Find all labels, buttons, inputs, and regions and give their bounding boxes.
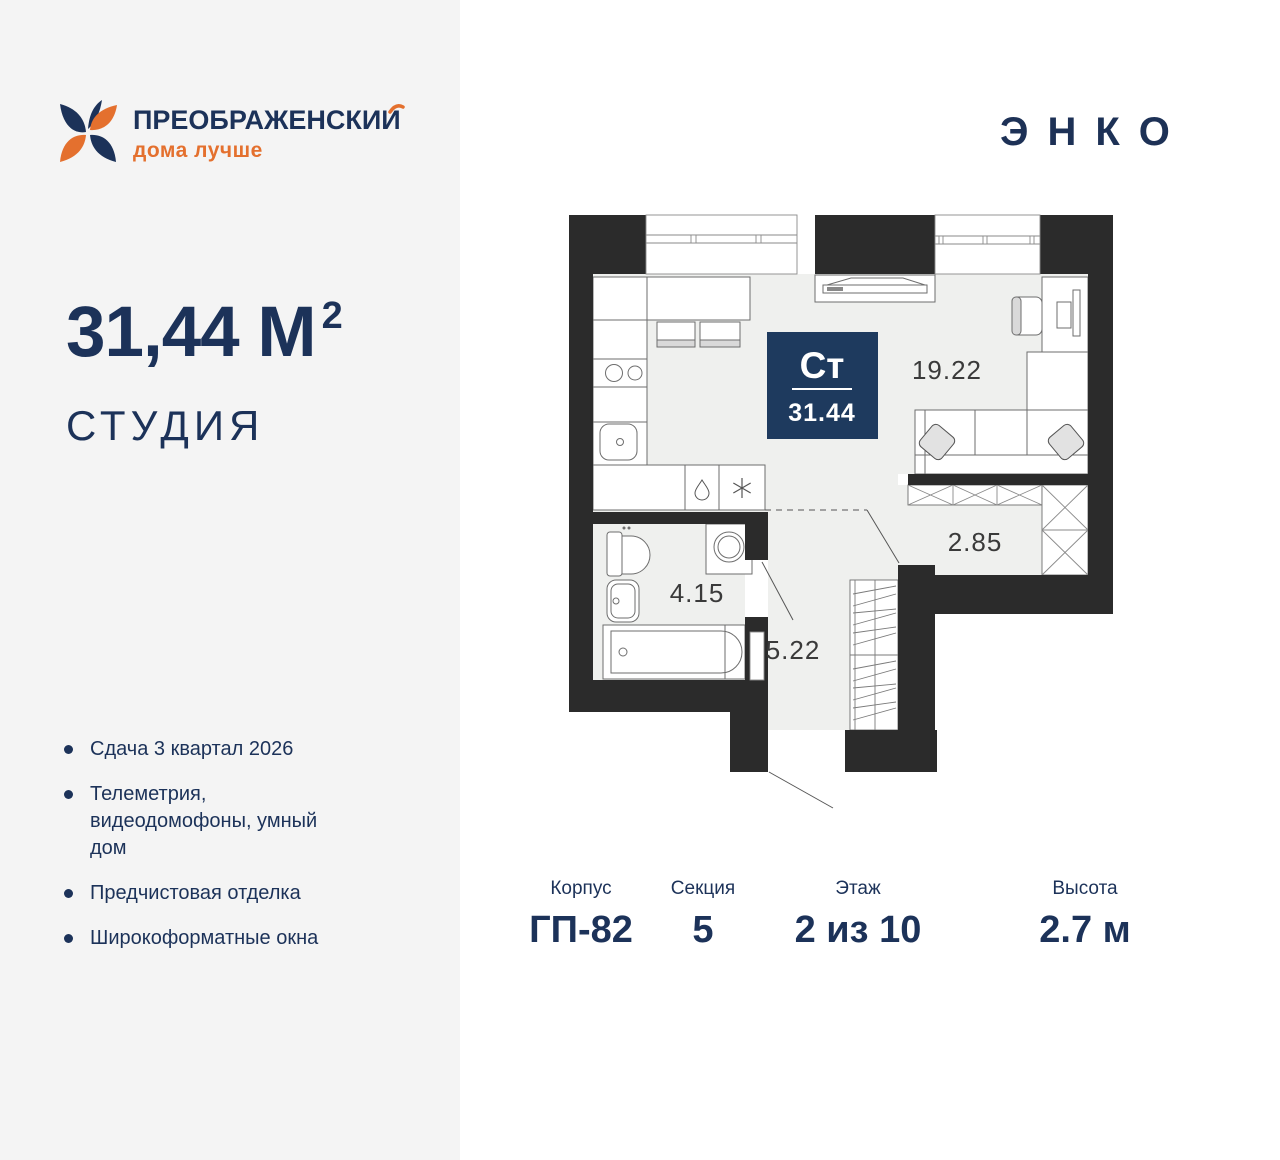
developer-logo: ЭНКО bbox=[1000, 110, 1189, 155]
kitchen-appliance-row bbox=[593, 465, 765, 510]
kitchen-cabinets bbox=[593, 320, 647, 465]
bathroom-sink-icon bbox=[607, 580, 639, 622]
feature-text: Телеметрия, видеодомофоны, умный дом bbox=[90, 781, 338, 862]
feature-text: Широкоформатные окна bbox=[90, 925, 318, 952]
feature-text: Сдача 3 квартал 2026 bbox=[90, 736, 293, 763]
feature-text: Предчистовая отделка bbox=[90, 880, 301, 907]
feature-item: Телеметрия, видеодомофоны, умный дом bbox=[64, 781, 338, 862]
bathtub-icon bbox=[603, 625, 745, 679]
monitor-icon bbox=[1057, 302, 1071, 328]
badge-type: Ст bbox=[800, 345, 845, 386]
closet-row bbox=[908, 485, 1042, 505]
flat-card: ПРЕОБРАЖЕНСКИИ дома лучше 31,44 М2 СТУДИ… bbox=[0, 0, 1280, 1160]
bullet-dot bbox=[64, 934, 73, 943]
room-label-living: 19.22 bbox=[912, 355, 982, 385]
brand-flower-icon bbox=[56, 98, 120, 168]
info-sekcia: Секция 5 bbox=[671, 878, 735, 952]
info-value: ГП-82 bbox=[529, 909, 633, 952]
info-label: Этаж bbox=[795, 878, 922, 900]
tv-console bbox=[815, 275, 935, 302]
feature-list: Сдача 3 квартал 2026 Телеметрия, видеодо… bbox=[64, 736, 338, 970]
brand-title-main: ПРЕОБРАЖЕНСКИ bbox=[133, 105, 381, 135]
room-label-hall: 5.22 bbox=[766, 635, 821, 665]
info-etazh: Этаж 2 из 10 bbox=[795, 878, 922, 952]
bullet-dot bbox=[64, 889, 73, 898]
stove-burner-icon bbox=[606, 365, 623, 382]
window-icon bbox=[646, 215, 797, 274]
sidebar: ПРЕОБРАЖЕНСКИИ дома лучше 31,44 М2 СТУДИ… bbox=[0, 0, 460, 1160]
badge-area: 31.44 bbox=[788, 399, 856, 427]
info-label: Высота bbox=[1039, 878, 1131, 900]
hall-wardrobe bbox=[850, 580, 898, 730]
door-frame bbox=[750, 632, 764, 680]
area-headline: 31,44 М2 bbox=[66, 292, 342, 373]
feature-item: Предчистовая отделка bbox=[64, 880, 338, 907]
floorplan: 19.22 4.15 5.22 2.85 Ст 31.44 bbox=[565, 212, 1113, 837]
flat-badge: Ст 31.44 bbox=[767, 332, 878, 439]
info-value: 2.7 м bbox=[1039, 909, 1131, 952]
window-icon bbox=[935, 215, 1040, 274]
info-korpus: Корпус ГП-82 bbox=[529, 878, 633, 952]
info-label: Корпус bbox=[529, 878, 633, 900]
wardrobe-x bbox=[1042, 485, 1088, 575]
info-value: 2 из 10 bbox=[795, 909, 922, 952]
flat-type: СТУДИЯ bbox=[66, 402, 264, 450]
title-accent-icon bbox=[387, 91, 405, 119]
brand-text: ПРЕОБРАЖЕНСКИИ дома лучше bbox=[133, 98, 401, 163]
kitchen-counter bbox=[593, 277, 750, 320]
door-swing-line bbox=[769, 772, 833, 808]
area-value: 31,44 bbox=[66, 293, 239, 372]
info-vysota: Высота 2.7 м bbox=[1039, 878, 1131, 952]
bullet-dot bbox=[64, 745, 73, 754]
feature-item: Сдача 3 квартал 2026 bbox=[64, 736, 338, 763]
area-sup: 2 bbox=[322, 295, 342, 337]
brand-tagline: дома лучше bbox=[133, 139, 401, 163]
room-label-bathroom: 4.15 bbox=[670, 578, 725, 608]
bullet-dot bbox=[64, 790, 73, 799]
info-label: Секция bbox=[671, 878, 735, 900]
room-label-wardrobe: 2.85 bbox=[948, 527, 1003, 557]
brand-title: ПРЕОБРАЖЕНСКИИ bbox=[133, 106, 401, 134]
area-unit: М bbox=[257, 293, 315, 372]
brand: ПРЕОБРАЖЕНСКИИ дома лучше bbox=[56, 98, 401, 168]
stove-burner-icon bbox=[628, 366, 642, 380]
feature-item: Широкоформатные окна bbox=[64, 925, 338, 952]
info-value: 5 bbox=[671, 909, 735, 952]
